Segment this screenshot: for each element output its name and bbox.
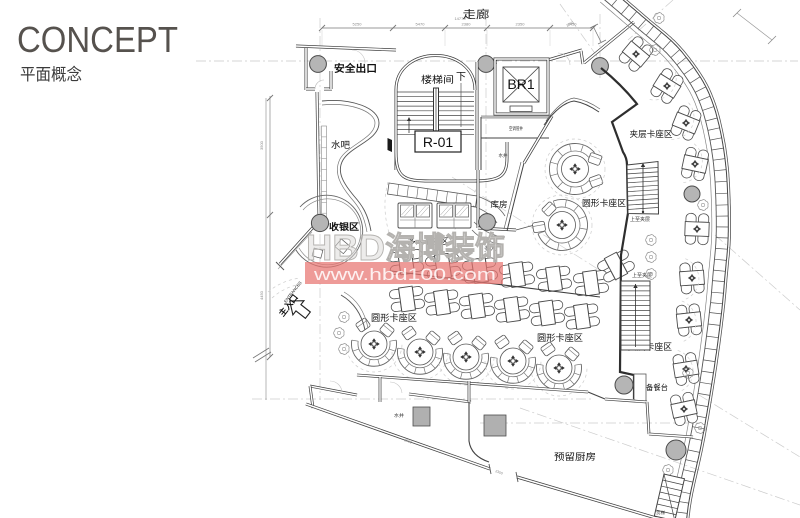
svg-text:水井: 水井 (499, 152, 508, 159)
svg-text:安全出口: 安全出口 (334, 62, 377, 75)
svg-text:预留厨房: 预留厨房 (554, 451, 596, 462)
svg-text:4450: 4450 (259, 290, 264, 300)
svg-text:夹层卡座区: 夹层卡座区 (630, 129, 673, 139)
svg-text:圆形卡座区: 圆形卡座区 (582, 198, 627, 208)
svg-text:库房: 库房 (491, 199, 508, 209)
svg-text:5470: 5470 (416, 22, 426, 27)
svg-text:3500: 3500 (259, 140, 264, 150)
svg-text:圆形卡座区: 圆形卡座区 (537, 332, 583, 343)
svg-text:下: 下 (456, 72, 466, 83)
svg-text:2380: 2380 (462, 22, 472, 27)
svg-text:水井: 水井 (394, 412, 405, 419)
svg-text:圆形卡座区: 圆形卡座区 (371, 312, 417, 323)
svg-text:2350: 2350 (516, 22, 526, 27)
svg-text:走廊: 走廊 (463, 7, 490, 21)
svg-text:空调管井: 空调管井 (509, 125, 523, 132)
svg-text:HBD海博装饰: HBD海博装饰 (306, 227, 505, 268)
svg-text:BR1: BR1 (507, 76, 534, 92)
svg-text:货梯: 货梯 (656, 509, 665, 515)
svg-text:平面概念: 平面概念 (20, 64, 82, 84)
svg-text:上至夹层: 上至夹层 (632, 272, 652, 279)
svg-text:R-01: R-01 (423, 134, 454, 150)
svg-text:上至夹层: 上至夹层 (630, 216, 650, 223)
svg-text:CONCEPT: CONCEPT (17, 19, 178, 60)
svg-text:5250: 5250 (353, 22, 363, 27)
svg-text:备餐台: 备餐台 (646, 382, 668, 392)
svg-text:楼梯间: 楼梯间 (421, 74, 454, 86)
svg-text:水吧: 水吧 (331, 139, 350, 150)
